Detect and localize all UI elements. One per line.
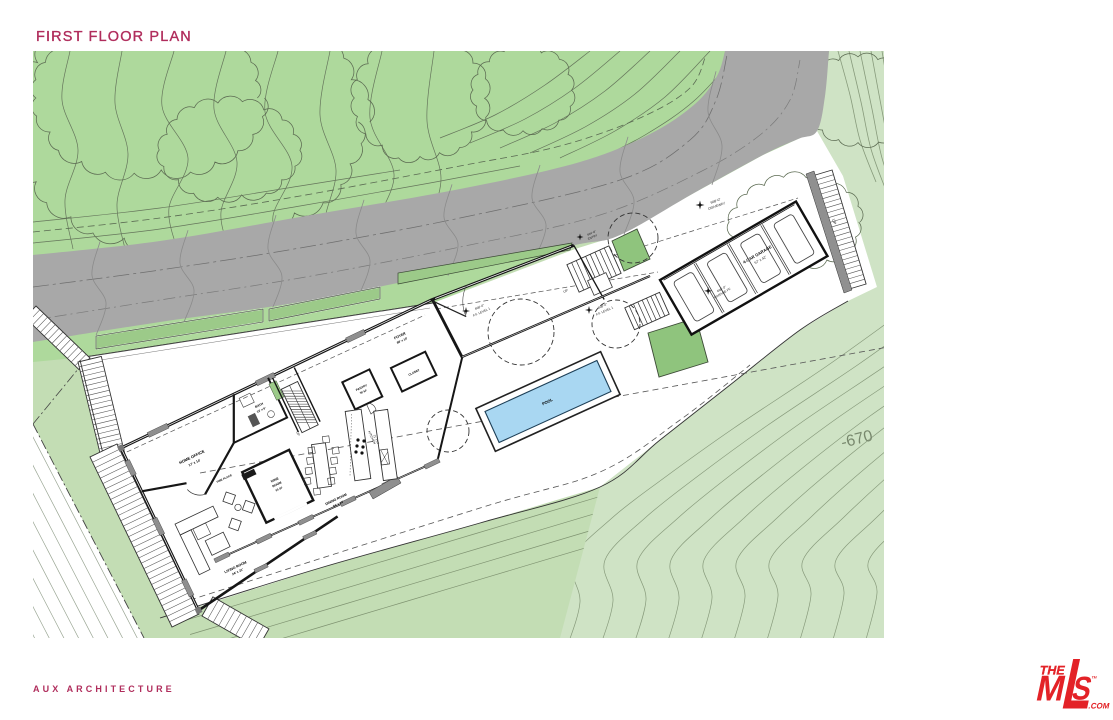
svg-text:.COM: .COM (1088, 701, 1111, 710)
svg-text:TM: TM (1091, 675, 1097, 679)
